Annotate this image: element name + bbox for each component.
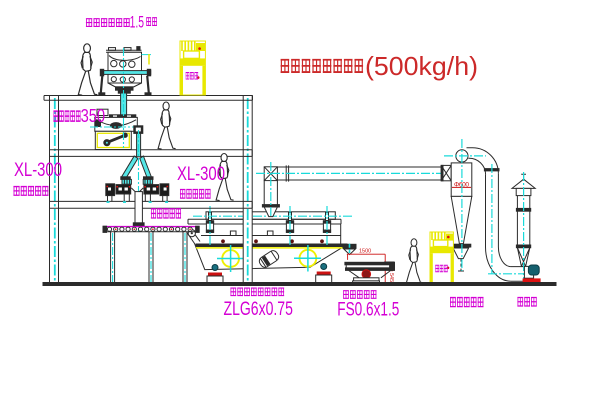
svg-text:350: 350 <box>81 105 106 126</box>
svg-text:XL-300: XL-300 <box>14 160 62 181</box>
svg-text:1500: 1500 <box>359 249 371 255</box>
svg-text:1.5: 1.5 <box>130 12 144 31</box>
svg-text:(500kg/h): (500kg/h) <box>365 51 478 81</box>
svg-text:XL-300: XL-300 <box>177 164 225 185</box>
svg-text:545: 545 <box>388 273 394 282</box>
svg-text:FS0.6x1.5: FS0.6x1.5 <box>337 299 399 321</box>
svg-text:ZLG6x0.75: ZLG6x0.75 <box>224 298 294 320</box>
